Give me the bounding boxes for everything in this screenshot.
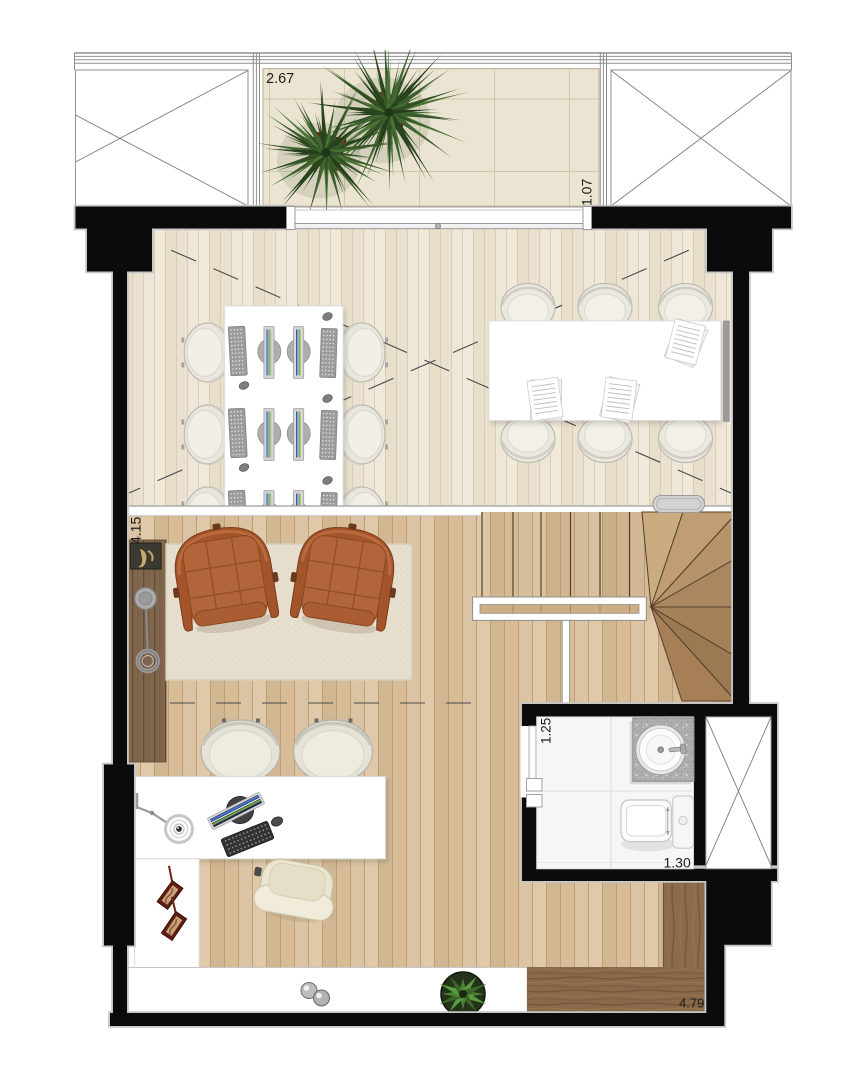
svg-text:1.07: 1.07 — [579, 179, 595, 206]
svg-text:4.79: 4.79 — [679, 996, 704, 1011]
svg-text:4.15: 4.15 — [128, 517, 144, 544]
svg-text:2.67: 2.67 — [266, 71, 294, 87]
svg-text:1.25: 1.25 — [539, 718, 554, 744]
svg-text:1.30: 1.30 — [664, 855, 691, 871]
